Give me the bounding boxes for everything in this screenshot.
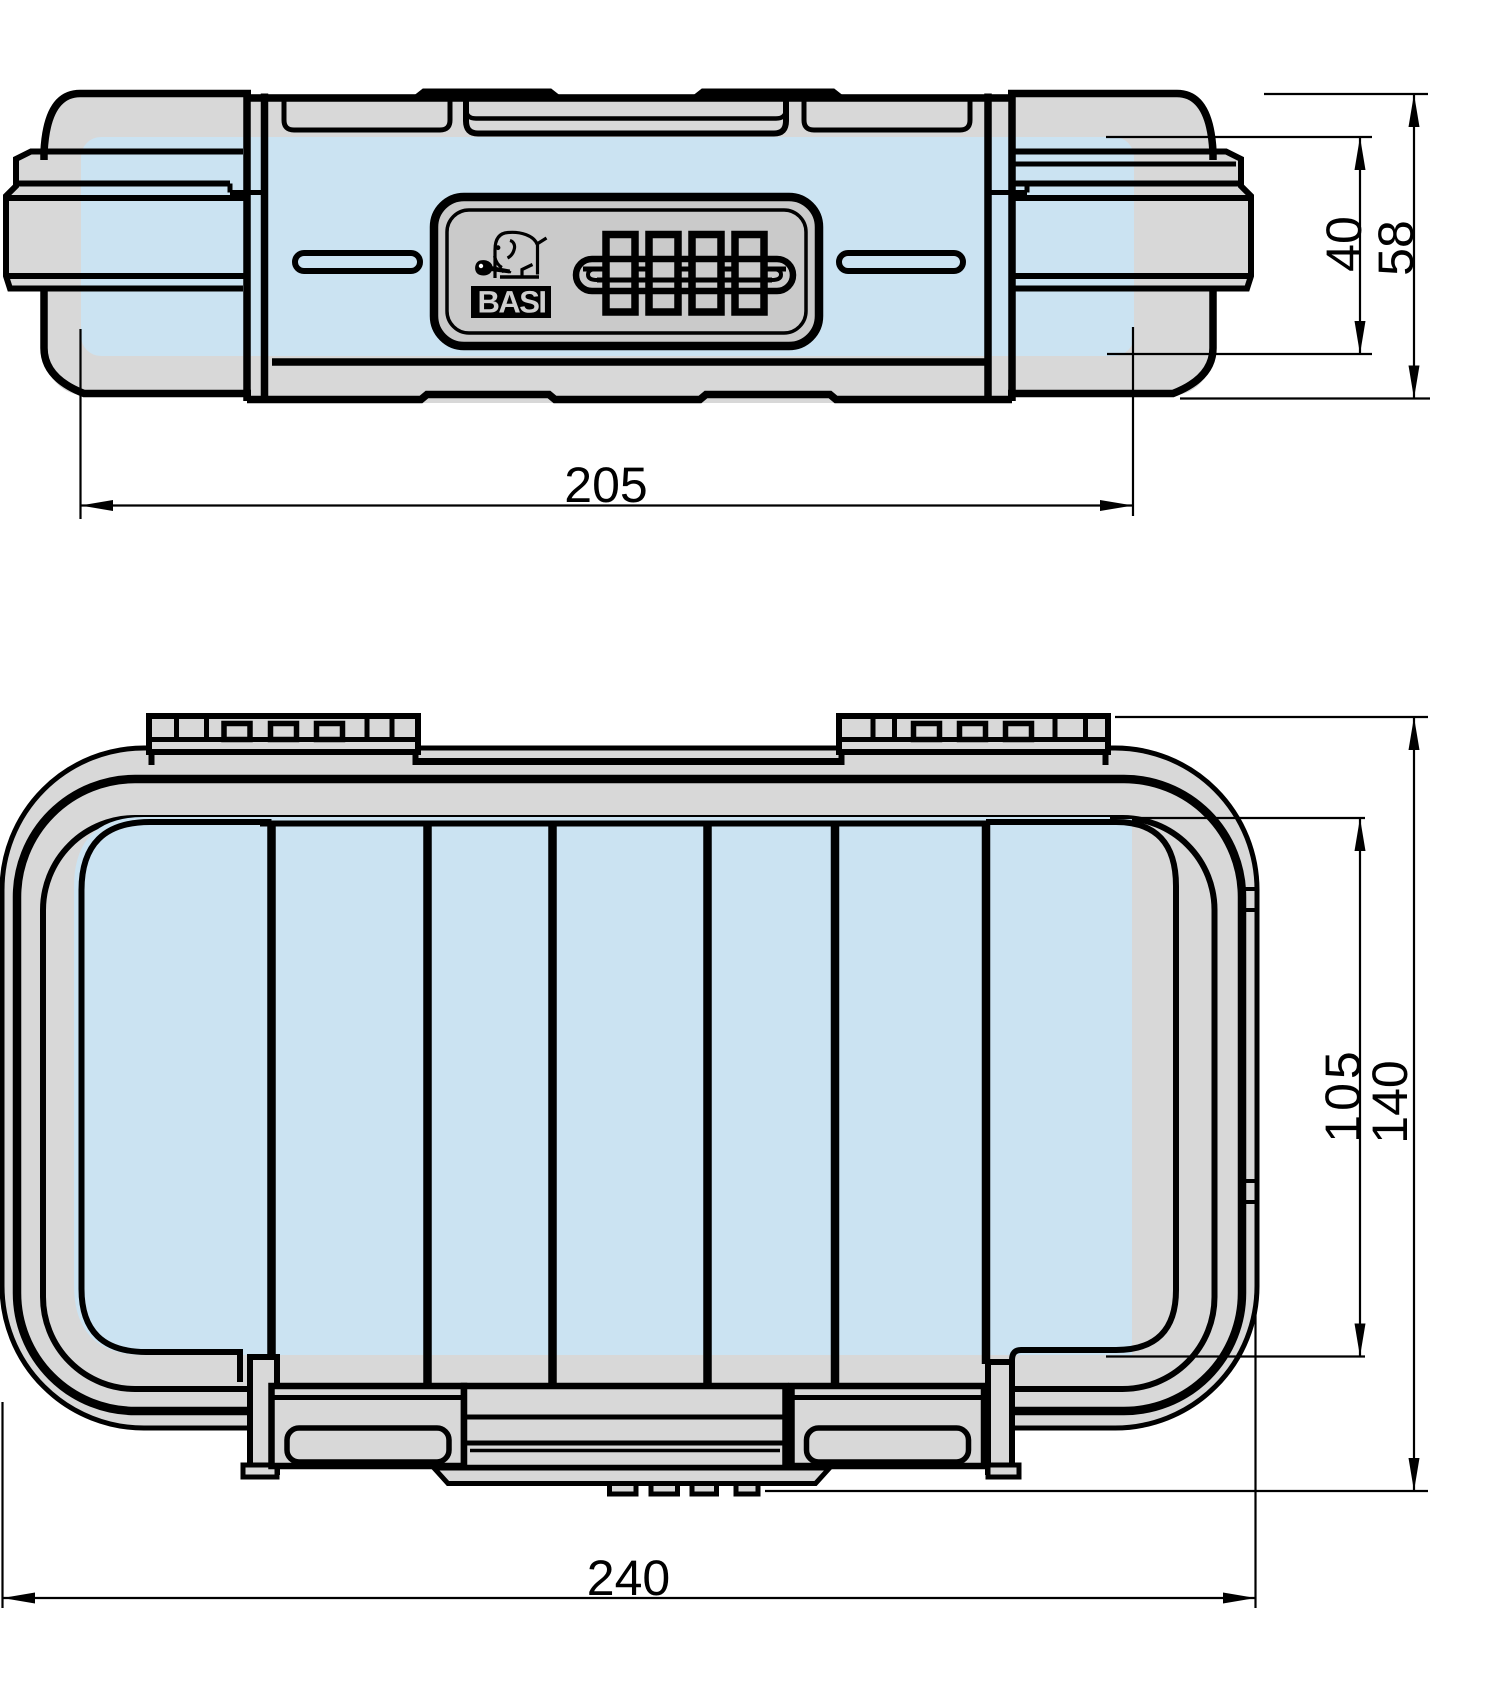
svg-text:40: 40: [1316, 216, 1372, 272]
svg-text:140: 140: [1362, 1060, 1418, 1143]
svg-text:240: 240: [587, 1550, 670, 1606]
svg-text:205: 205: [564, 457, 647, 513]
svg-text:58: 58: [1368, 220, 1424, 276]
svg-text:BASI: BASI: [477, 285, 545, 320]
